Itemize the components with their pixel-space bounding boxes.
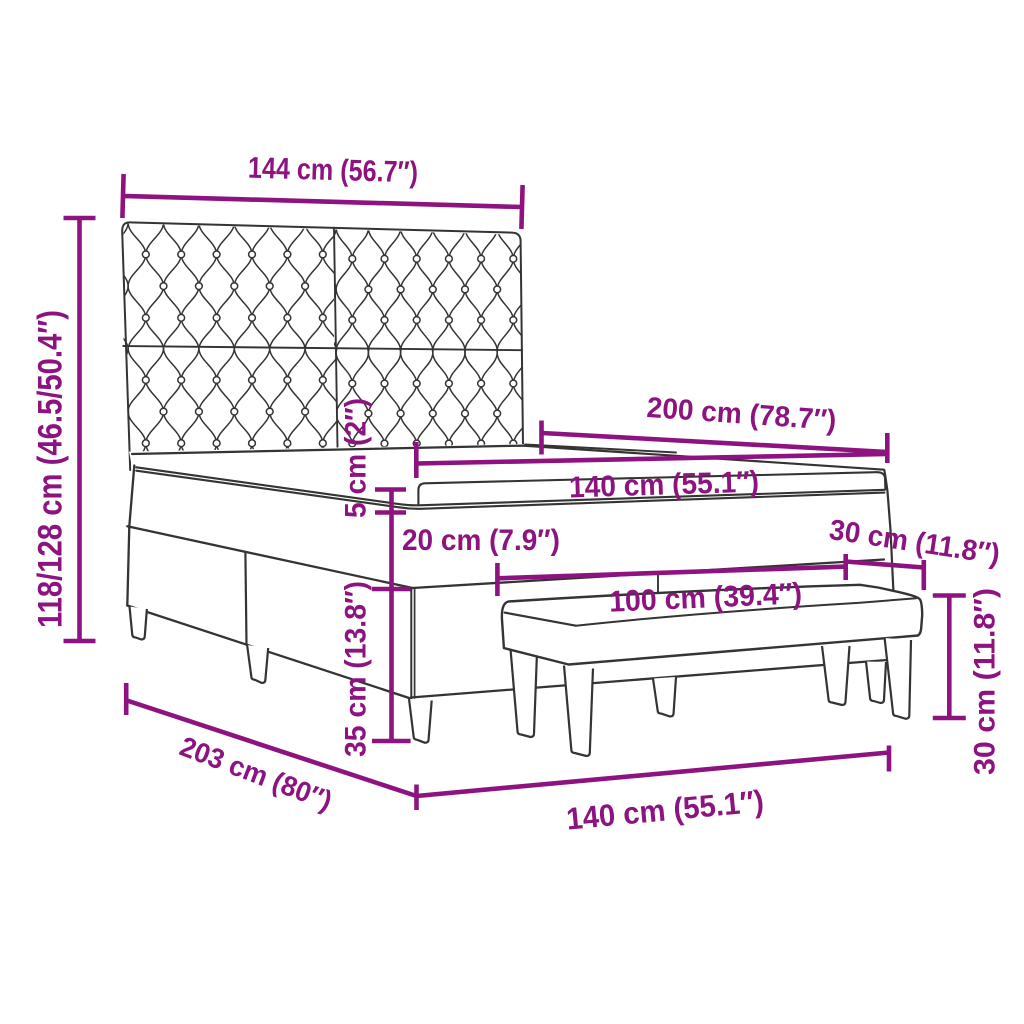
svg-text:35 cm (13.8″): 35 cm (13.8″) xyxy=(340,581,373,757)
svg-text:20 cm (7.9″): 20 cm (7.9″) xyxy=(402,524,560,557)
svg-text:140 cm (55.1″): 140 cm (55.1″) xyxy=(569,466,760,505)
svg-text:144 cm (56.7″): 144 cm (56.7″) xyxy=(248,152,419,190)
svg-text:118/128 cm (46.5/50.4″): 118/128 cm (46.5/50.4″) xyxy=(32,310,70,628)
svg-text:5 cm (2″): 5 cm (2″) xyxy=(340,398,373,518)
svg-text:30 cm (11.8″): 30 cm (11.8″) xyxy=(969,588,1002,775)
